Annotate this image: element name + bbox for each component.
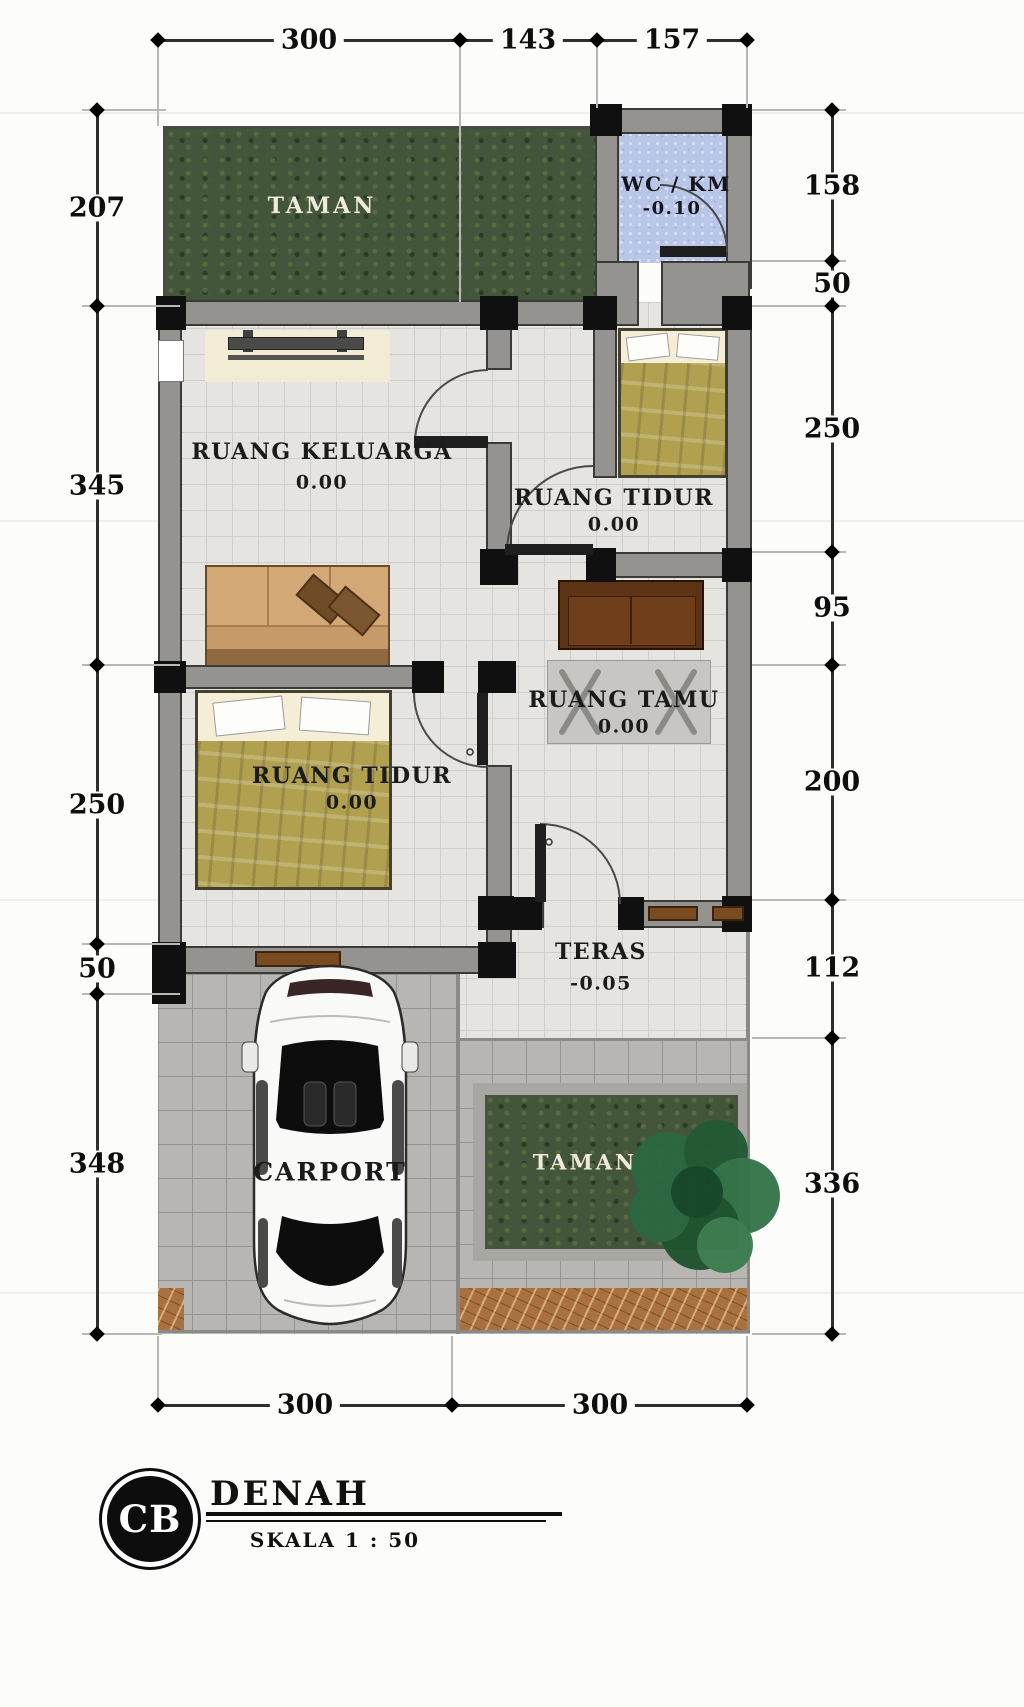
pillow bbox=[299, 697, 371, 736]
bed-cover bbox=[621, 363, 725, 475]
dim-left-348: 348 bbox=[62, 1151, 132, 1178]
wall-post bbox=[480, 296, 518, 330]
dim-right-95: 95 bbox=[806, 595, 858, 622]
wall-post bbox=[480, 549, 518, 585]
label-tamu: RUANG TAMU bbox=[528, 689, 719, 711]
label-taman-bottom: TAMAN bbox=[533, 1152, 638, 1173]
wc-floor bbox=[617, 130, 726, 263]
dim-marker bbox=[824, 544, 840, 560]
wall-post bbox=[514, 897, 542, 930]
wall-post bbox=[478, 661, 516, 693]
ext-line bbox=[459, 46, 461, 302]
logo-ring: CB bbox=[99, 1468, 201, 1570]
label-teras-level: -0.05 bbox=[570, 975, 632, 994]
dim-right-200: 200 bbox=[797, 769, 867, 796]
dim-right-158: 158 bbox=[797, 173, 867, 200]
dim-right-250: 250 bbox=[797, 416, 867, 443]
dim-marker bbox=[89, 657, 105, 673]
wall-post bbox=[722, 104, 752, 136]
dim-marker bbox=[89, 936, 105, 952]
label-tidur-kanan-level: 0.00 bbox=[588, 516, 640, 535]
window-left-wall bbox=[158, 340, 184, 382]
bench-rail bbox=[228, 355, 364, 360]
dim-marker bbox=[89, 986, 105, 1002]
label-tamu-level: 0.00 bbox=[598, 718, 650, 737]
wall-post bbox=[590, 104, 622, 136]
label-teras: TERAS bbox=[555, 941, 647, 963]
wall-post bbox=[722, 296, 752, 330]
ext-line bbox=[157, 46, 159, 126]
dim-right-336: 336 bbox=[797, 1171, 867, 1198]
carport-teras-divider bbox=[456, 974, 460, 1334]
dim-marker bbox=[89, 102, 105, 118]
label-keluarga-level: 0.00 bbox=[296, 474, 348, 493]
wall bbox=[158, 302, 182, 1002]
dim-marker bbox=[824, 253, 840, 269]
dim-marker bbox=[824, 298, 840, 314]
wall bbox=[156, 300, 602, 326]
wall-post bbox=[156, 296, 186, 330]
label-tidur-kiri: RUANG TIDUR bbox=[252, 765, 452, 787]
dim-marker bbox=[89, 298, 105, 314]
cabinet bbox=[205, 565, 390, 673]
sheet-title: DENAH bbox=[210, 1474, 370, 1514]
dim-left-50: 50 bbox=[71, 956, 123, 983]
artifact-line bbox=[0, 112, 1024, 114]
window-teras bbox=[712, 906, 744, 921]
wall-post bbox=[412, 661, 444, 693]
dim-marker bbox=[824, 1030, 840, 1046]
sofa bbox=[558, 580, 704, 650]
label-tidur-kanan: RUANG TIDUR bbox=[514, 487, 714, 509]
ext-line bbox=[596, 46, 598, 108]
dim-left-250: 250 bbox=[62, 792, 132, 819]
dim-marker bbox=[739, 32, 755, 48]
wall-post bbox=[478, 942, 516, 978]
title-rule bbox=[206, 1520, 546, 1522]
label-tidur-kiri-level: 0.00 bbox=[326, 794, 378, 813]
dim-bottom-300a: 300 bbox=[270, 1392, 340, 1419]
bed-right bbox=[618, 328, 728, 478]
dim-marker bbox=[824, 657, 840, 673]
dim-marker bbox=[150, 32, 166, 48]
ext-line bbox=[157, 1336, 159, 1400]
wall bbox=[158, 665, 418, 689]
wall-post bbox=[722, 548, 752, 582]
dim-top-157: 157 bbox=[637, 27, 707, 54]
dim-bottom-300b: 300 bbox=[565, 1392, 635, 1419]
wall bbox=[486, 442, 512, 555]
label-wc-level: -0.10 bbox=[643, 200, 702, 218]
ext-line bbox=[451, 1336, 453, 1400]
pillow bbox=[626, 333, 671, 362]
dim-marker bbox=[89, 1326, 105, 1342]
dim-marker bbox=[824, 1326, 840, 1342]
dim-marker bbox=[150, 1397, 166, 1413]
label-wc: WC / KM bbox=[621, 174, 731, 194]
pillow bbox=[676, 333, 720, 361]
ext-line bbox=[746, 1336, 748, 1400]
carport-paving bbox=[158, 974, 460, 1334]
wall bbox=[726, 302, 752, 902]
window-teras bbox=[648, 906, 698, 921]
window-front-left bbox=[255, 951, 341, 967]
bed-left bbox=[195, 690, 392, 890]
dim-marker bbox=[824, 892, 840, 908]
wall-post bbox=[478, 896, 514, 930]
dim-marker bbox=[824, 102, 840, 118]
dim-top-300: 300 bbox=[274, 27, 344, 54]
sheet-scale: SKALA 1 : 50 bbox=[240, 1528, 430, 1552]
marble-walkway bbox=[458, 1288, 750, 1332]
label-carport: CARPORT bbox=[253, 1160, 407, 1185]
dim-left-345: 345 bbox=[62, 473, 132, 500]
teras-edge bbox=[458, 1038, 750, 1041]
dim-left-207: 207 bbox=[62, 195, 132, 222]
plan-bottom-edge bbox=[158, 1330, 750, 1333]
dim-right-112: 112 bbox=[797, 955, 867, 982]
label-keluarga: RUANG KELUARGA bbox=[191, 441, 452, 463]
logo-circle: CB bbox=[107, 1476, 193, 1562]
ext-line bbox=[746, 46, 748, 108]
logo-text: CB bbox=[119, 1497, 182, 1541]
pillow bbox=[212, 695, 285, 736]
wall-post bbox=[586, 548, 616, 582]
dim-top-143: 143 bbox=[493, 27, 563, 54]
dim-marker bbox=[452, 32, 468, 48]
dim-marker bbox=[739, 1397, 755, 1413]
wall-post bbox=[618, 897, 644, 930]
wall bbox=[593, 326, 617, 478]
marble-walkway-left bbox=[158, 1288, 184, 1332]
yard-right-edge bbox=[747, 1040, 750, 1332]
wall-post bbox=[583, 296, 617, 330]
dim-marker bbox=[444, 1397, 460, 1413]
bench bbox=[228, 337, 364, 350]
dim-marker bbox=[589, 32, 605, 48]
dim-right-50: 50 bbox=[806, 271, 858, 298]
teras-right-edge bbox=[746, 928, 750, 1040]
garden-top bbox=[163, 126, 603, 305]
label-taman-top: TAMAN bbox=[268, 195, 377, 217]
sofa-seat bbox=[568, 596, 696, 646]
cabinet-seam bbox=[267, 567, 269, 625]
sofa-divider bbox=[630, 596, 632, 644]
wall-post bbox=[152, 972, 186, 1004]
title-rule bbox=[206, 1512, 562, 1516]
floor-plan-sheet: TAMAN WC / KM -0.10 RUANG KELUARGA 0.00 … bbox=[0, 0, 1024, 1707]
wall bbox=[486, 326, 512, 370]
